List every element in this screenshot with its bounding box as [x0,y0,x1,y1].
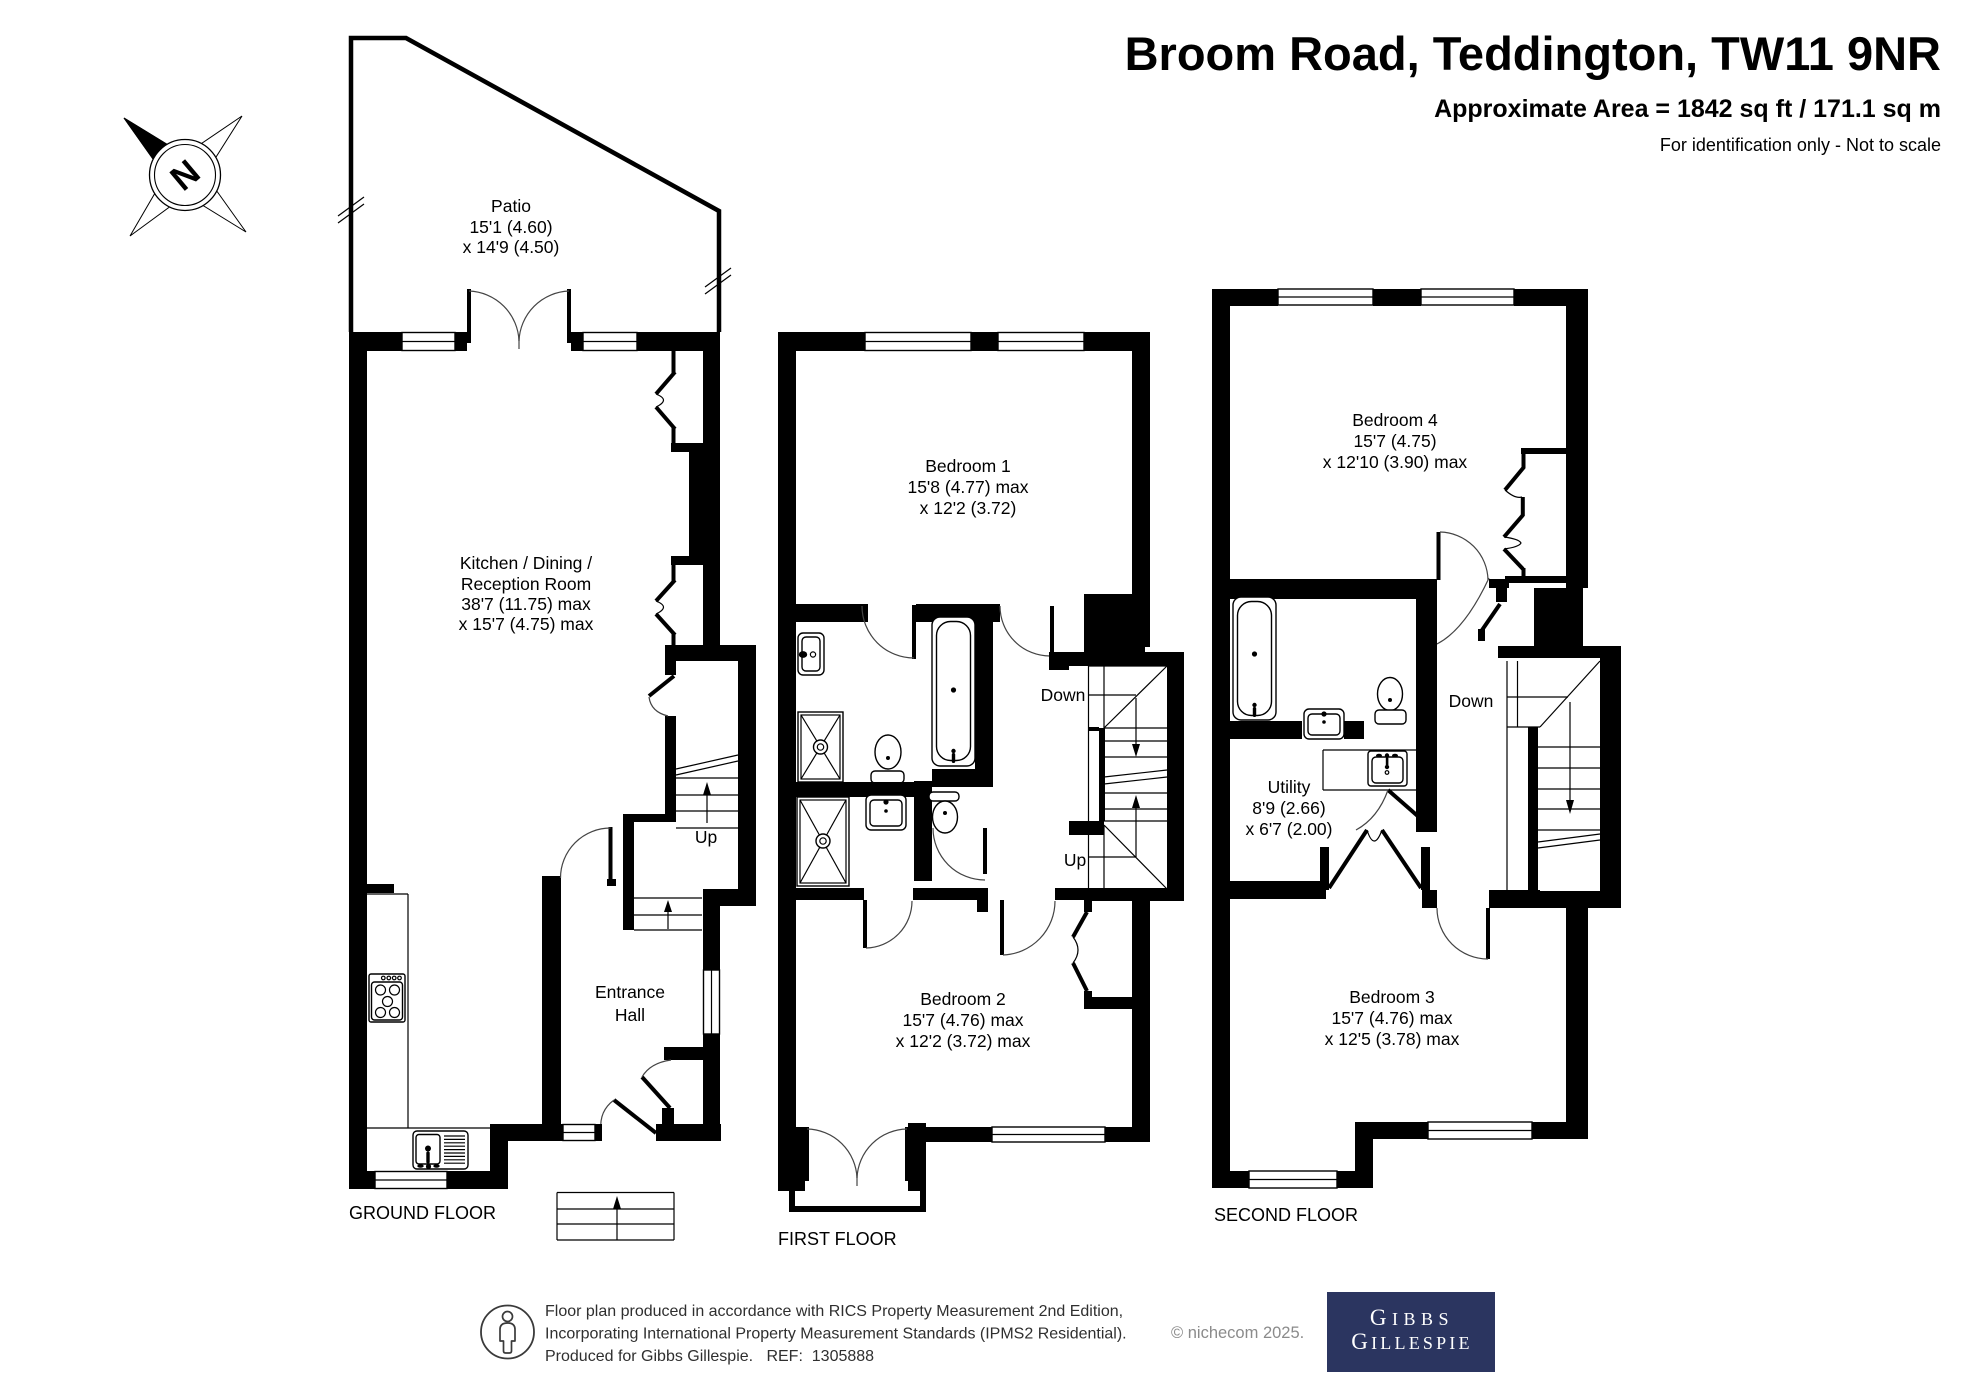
svg-text:Broom Road, Teddington, TW11 9: Broom Road, Teddington, TW11 9NR [1125,27,1941,80]
svg-text:For identification only - Not: For identification only - Not to scale [1660,135,1941,155]
svg-text:Floor plan produced in accorda: Floor plan produced in accordance with R… [545,1303,1123,1320]
svg-text:15'8 (4.77) max: 15'8 (4.77) max [907,477,1028,497]
svg-text:Produced for Gibbs Gillespie.: Produced for Gibbs Gillespie. REF: 13058… [545,1348,874,1365]
svg-text:Bedroom 4: Bedroom 4 [1352,410,1438,430]
svg-text:GILLESPIE: GILLESPIE [1351,1329,1472,1354]
svg-text:Utility: Utility [1268,777,1311,797]
svg-text:Reception Room: Reception Room [461,574,591,594]
svg-text:Incorporating International Pr: Incorporating International Property Mea… [545,1326,1127,1343]
svg-text:15'1 (4.60): 15'1 (4.60) [469,217,552,237]
svg-text:Bedroom 2: Bedroom 2 [920,989,1006,1009]
svg-text:Up: Up [695,827,717,847]
svg-text:GIBBS: GIBBS [1370,1305,1454,1330]
svg-text:x 12'5 (3.78) max: x 12'5 (3.78) max [1325,1029,1460,1049]
svg-text:Up: Up [1064,850,1086,870]
svg-text:x 12'2 (3.72) max: x 12'2 (3.72) max [896,1031,1031,1051]
svg-text:x 15'7 (4.75) max: x 15'7 (4.75) max [459,614,594,634]
svg-text:x 6'7 (2.00): x 6'7 (2.00) [1246,819,1333,839]
svg-text:x 12'2 (3.72): x 12'2 (3.72) [920,498,1017,518]
svg-text:© nichecom 2025.: © nichecom 2025. [1171,1324,1304,1342]
svg-text:SECOND FLOOR: SECOND FLOOR [1214,1205,1358,1225]
svg-text:Down: Down [1041,685,1086,705]
svg-text:Bedroom 3: Bedroom 3 [1349,987,1435,1007]
svg-text:15'7 (4.76) max: 15'7 (4.76) max [902,1010,1023,1030]
svg-text:Kitchen / Dining /: Kitchen / Dining / [460,553,592,573]
svg-text:Bedroom 1: Bedroom 1 [925,456,1011,476]
svg-text:Approximate Area = 1842 sq ft: Approximate Area = 1842 sq ft / 171.1 sq… [1434,95,1941,123]
svg-text:Hall: Hall [615,1005,645,1025]
svg-text:Down: Down [1449,691,1494,711]
svg-text:38'7 (11.75) max: 38'7 (11.75) max [461,594,591,614]
svg-text:FIRST FLOOR: FIRST FLOOR [778,1229,897,1249]
svg-text:x 12'10 (3.90) max: x 12'10 (3.90) max [1323,452,1468,472]
svg-text:x 14'9 (4.50): x 14'9 (4.50) [463,237,560,257]
svg-text:GROUND FLOOR: GROUND FLOOR [349,1203,496,1223]
svg-text:15'7 (4.76) max: 15'7 (4.76) max [1331,1008,1452,1028]
svg-text:8'9 (2.66): 8'9 (2.66) [1252,798,1325,818]
svg-text:Entrance: Entrance [595,982,665,1002]
svg-text:Patio: Patio [491,196,531,216]
svg-text:15'7 (4.75): 15'7 (4.75) [1353,431,1436,451]
